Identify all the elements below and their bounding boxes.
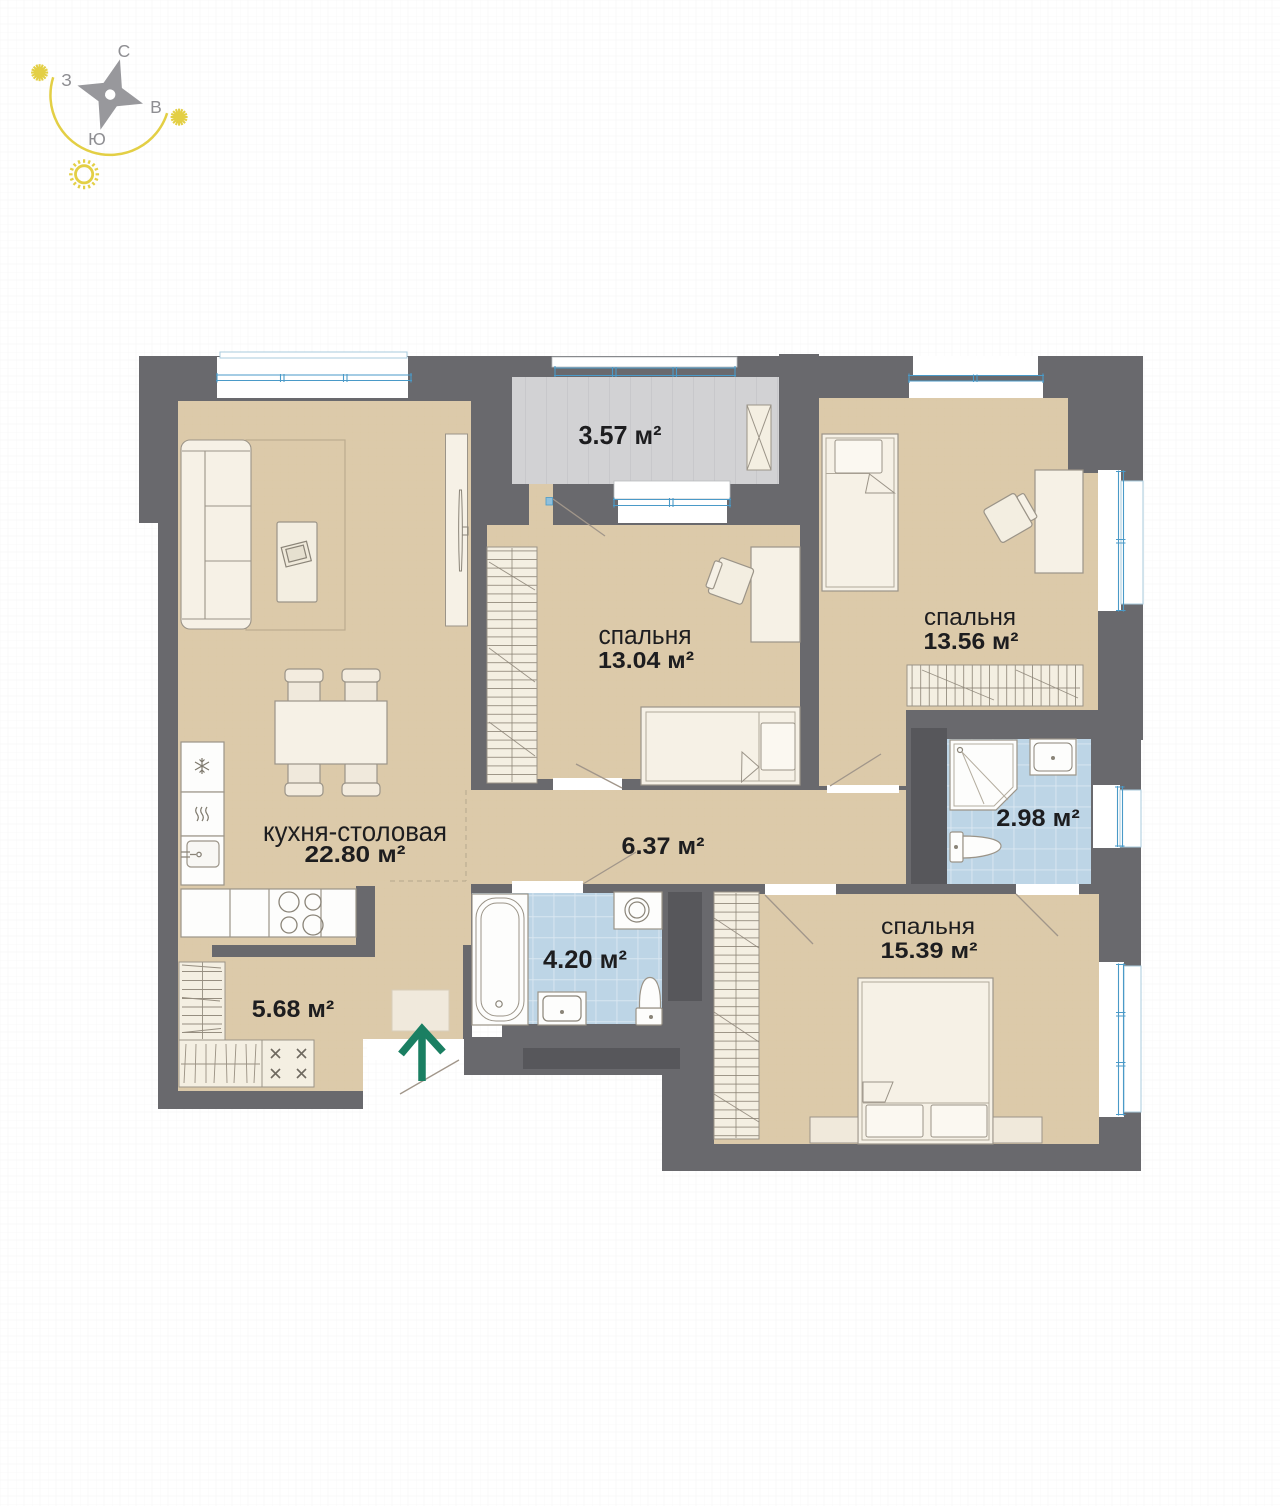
svg-text:спальня: спальня (599, 620, 692, 650)
svg-text:спальня: спальня (924, 604, 1016, 631)
svg-text:4.20 м²: 4.20 м² (543, 946, 627, 974)
svg-text:13.04 м²: 13.04 м² (598, 647, 694, 673)
svg-text:спальня: спальня (881, 913, 975, 939)
svg-text:15.39 м²: 15.39 м² (881, 938, 979, 963)
svg-text:2.98 м²: 2.98 м² (996, 805, 1080, 832)
svg-text:22.80 м²: 22.80 м² (305, 841, 406, 867)
svg-text:С: С (118, 41, 131, 61)
svg-text:В: В (150, 97, 162, 117)
svg-text:З: З (61, 70, 72, 90)
svg-text:Ю: Ю (88, 129, 106, 149)
svg-text:6.37 м²: 6.37 м² (622, 833, 705, 860)
svg-text:5.68 м²: 5.68 м² (252, 996, 335, 1023)
svg-text:3.57 м²: 3.57 м² (579, 420, 662, 450)
svg-text:13.56 м²: 13.56 м² (924, 628, 1019, 654)
